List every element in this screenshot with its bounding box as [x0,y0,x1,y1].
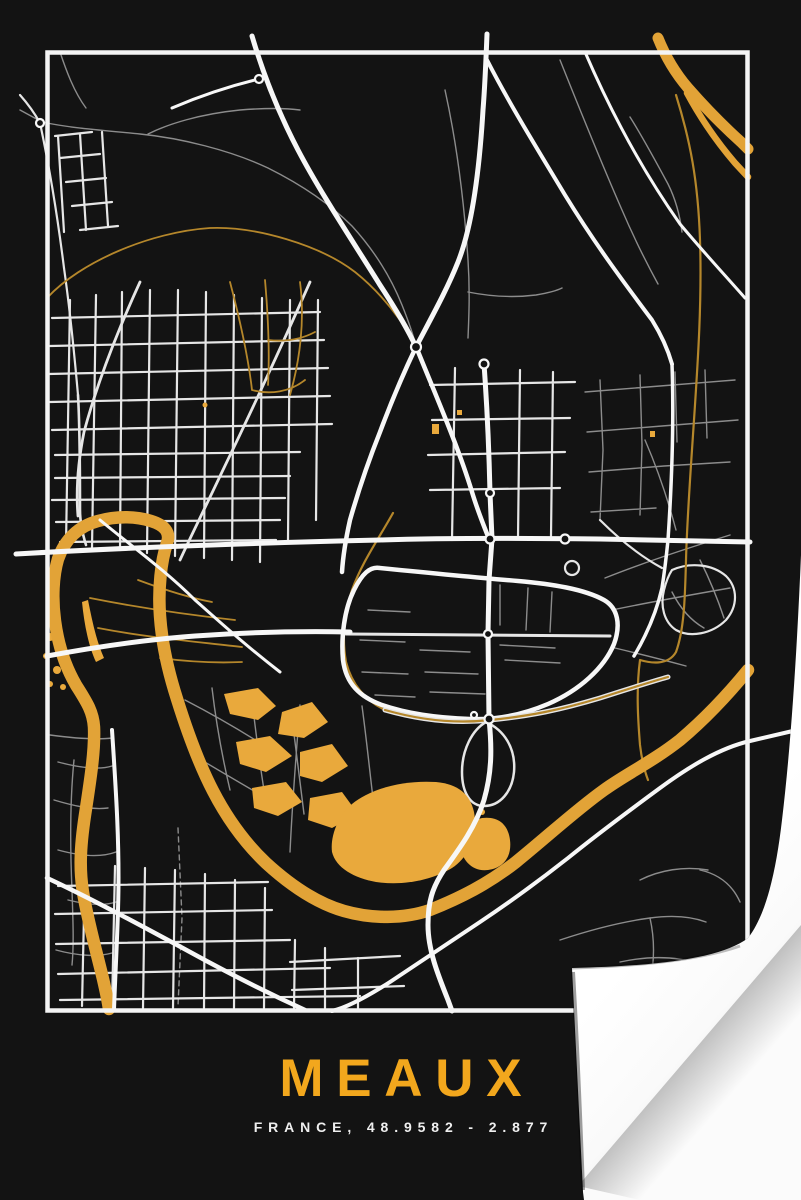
map-artwork [0,0,801,1200]
poster-product-photo: MEAUX FRANCE, 48.9582 - 2.877 [0,0,801,1200]
